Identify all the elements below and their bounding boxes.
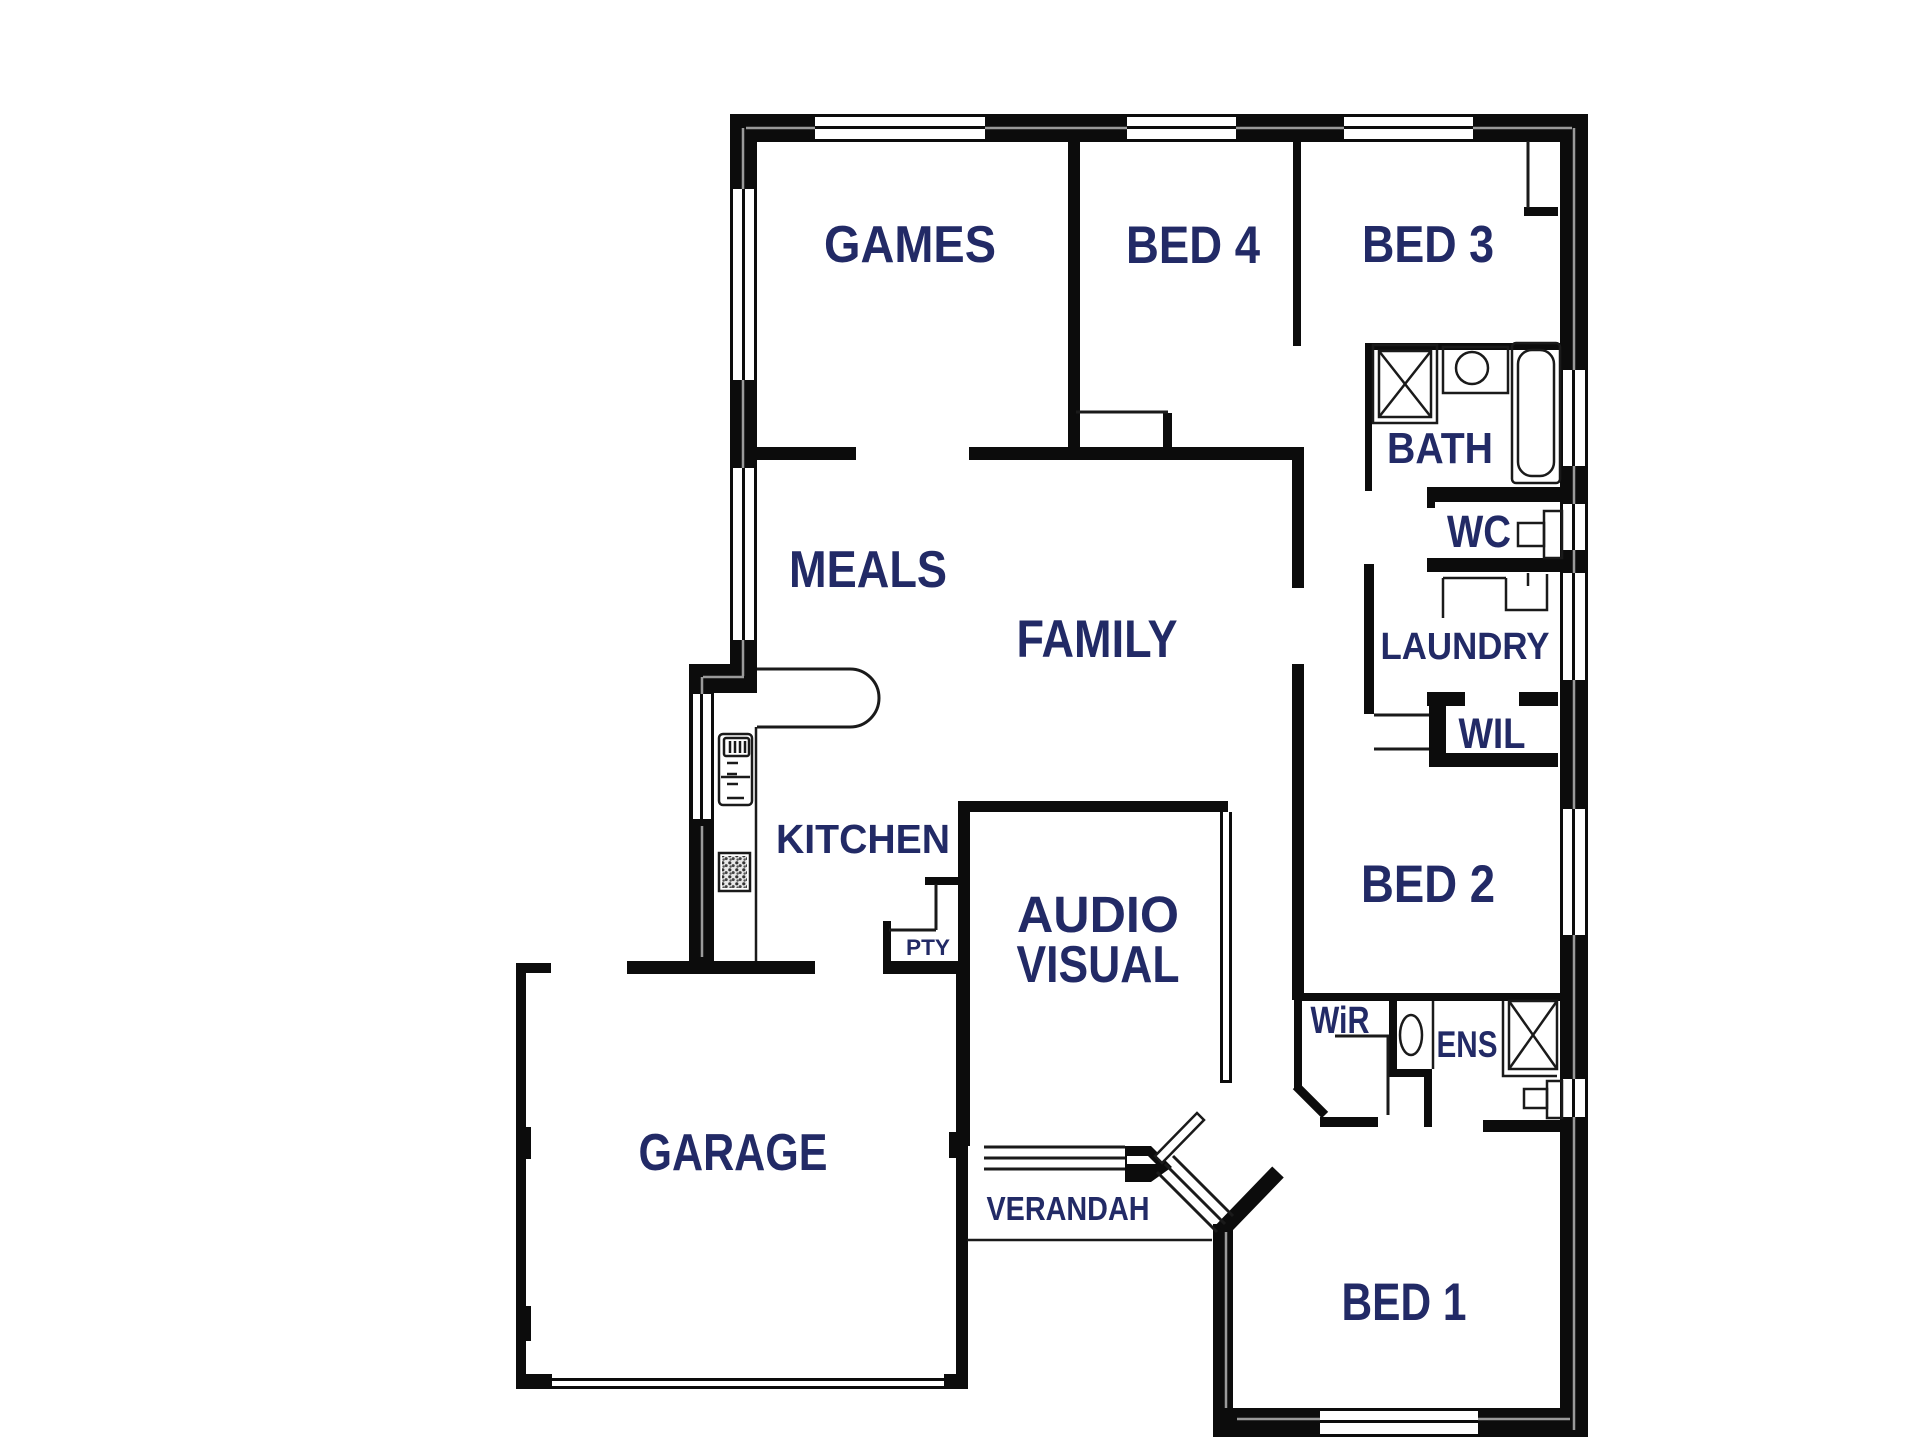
svg-text:VERANDAH: VERANDAH xyxy=(987,1190,1150,1227)
svg-text:BED 1: BED 1 xyxy=(1342,1273,1467,1332)
svg-text:GAMES: GAMES xyxy=(824,216,996,274)
svg-text:WIL: WIL xyxy=(1459,710,1526,758)
svg-text:BATH: BATH xyxy=(1387,424,1493,473)
svg-text:GARAGE: GARAGE xyxy=(639,1124,828,1182)
svg-text:ENS: ENS xyxy=(1437,1024,1498,1065)
svg-text:VISUAL: VISUAL xyxy=(1017,936,1180,994)
svg-text:BED 3: BED 3 xyxy=(1362,216,1494,274)
svg-text:PTY: PTY xyxy=(906,935,950,960)
svg-text:MEALS: MEALS xyxy=(789,541,947,599)
svg-text:WiR: WiR xyxy=(1311,1000,1370,1042)
svg-text:BED 2: BED 2 xyxy=(1361,855,1495,914)
svg-text:AUDIO: AUDIO xyxy=(1017,886,1179,943)
svg-text:LAUNDRY: LAUNDRY xyxy=(1381,626,1550,668)
svg-text:KITCHEN: KITCHEN xyxy=(776,816,950,862)
svg-text:WC: WC xyxy=(1447,506,1511,557)
svg-text:BED 4: BED 4 xyxy=(1126,216,1260,275)
svg-text:FAMILY: FAMILY xyxy=(1017,610,1178,669)
